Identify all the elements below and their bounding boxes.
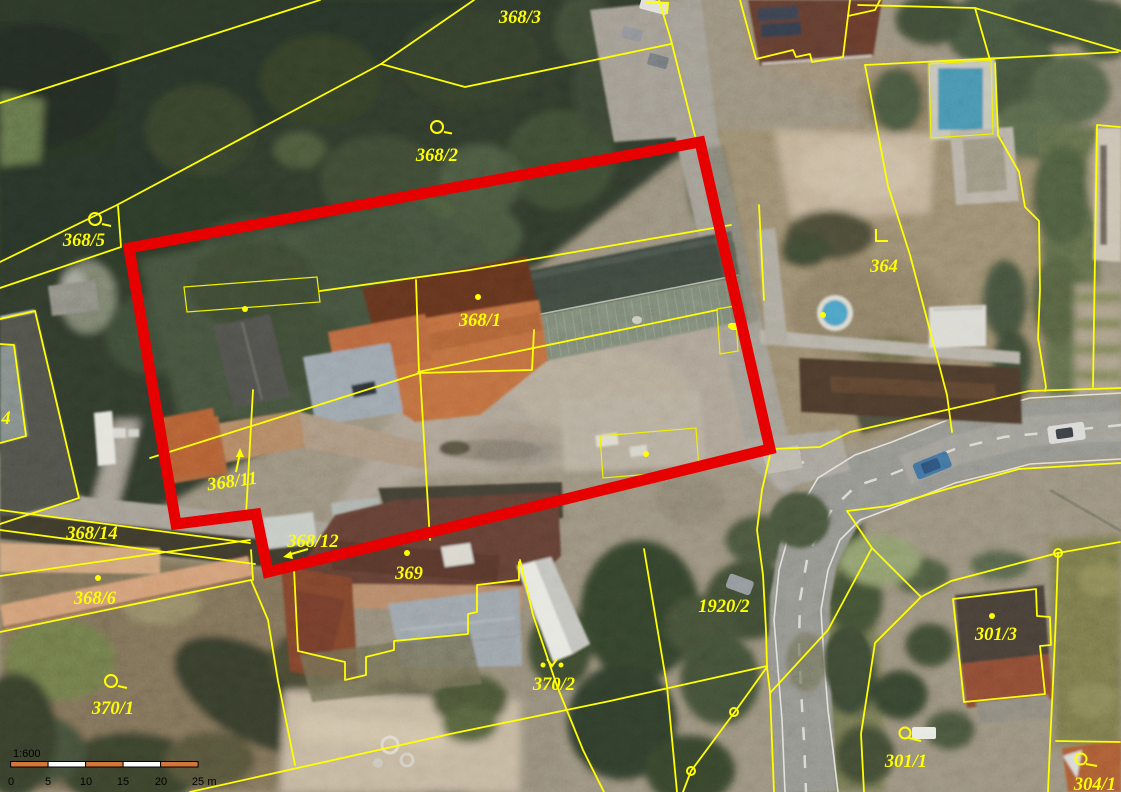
svg-text:301/3: 301/3 [974, 625, 1017, 645]
svg-text:1920/2: 1920/2 [698, 597, 749, 617]
svg-text:1:600: 1:600 [13, 748, 41, 760]
svg-text:5: 5 [45, 776, 51, 788]
svg-text:368/5: 368/5 [62, 231, 105, 251]
svg-text:368/3: 368/3 [498, 8, 541, 28]
svg-text:368/14: 368/14 [65, 524, 117, 544]
svg-text:301/1: 301/1 [884, 752, 927, 772]
svg-text:364: 364 [869, 257, 898, 277]
svg-text:370/2: 370/2 [532, 675, 575, 695]
svg-text:368/2: 368/2 [415, 146, 458, 166]
svg-text:370/1: 370/1 [91, 699, 134, 719]
svg-text:20: 20 [155, 776, 167, 788]
svg-text:25: 25 [192, 776, 204, 788]
svg-text:10: 10 [80, 776, 92, 788]
svg-text:m: m [207, 776, 216, 788]
svg-text:0: 0 [8, 776, 14, 788]
svg-text:369: 369 [394, 564, 423, 584]
svg-text:304/1: 304/1 [1073, 775, 1116, 792]
svg-text:368/1: 368/1 [458, 311, 501, 331]
svg-text:15: 15 [117, 776, 129, 788]
svg-text:368/12: 368/12 [286, 532, 338, 552]
svg-text:4: 4 [0, 409, 10, 429]
svg-text:368/6: 368/6 [73, 589, 117, 609]
